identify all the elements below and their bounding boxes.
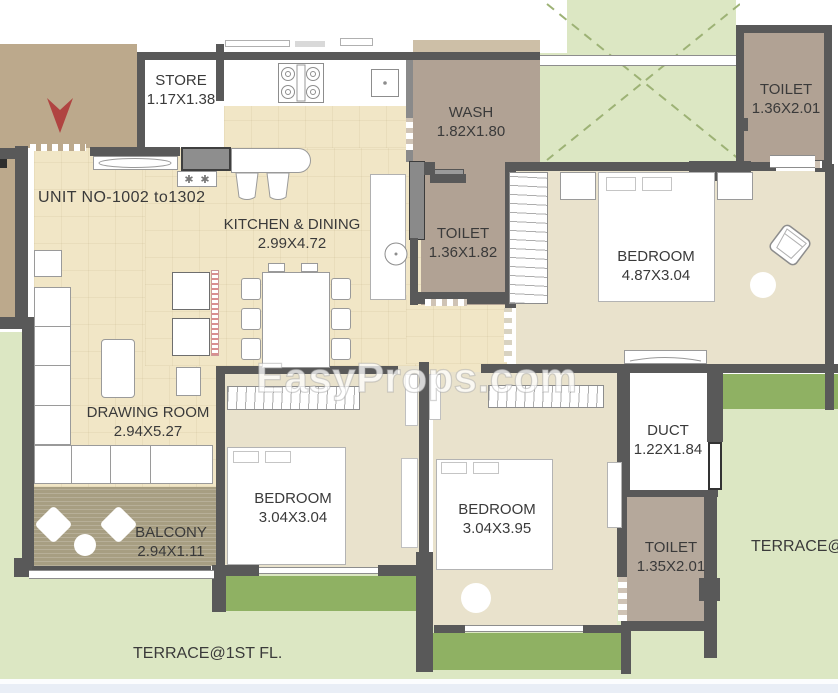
svg-text:✱: ✱ [184, 174, 193, 186]
svg-text:✱: ✱ [200, 174, 209, 186]
